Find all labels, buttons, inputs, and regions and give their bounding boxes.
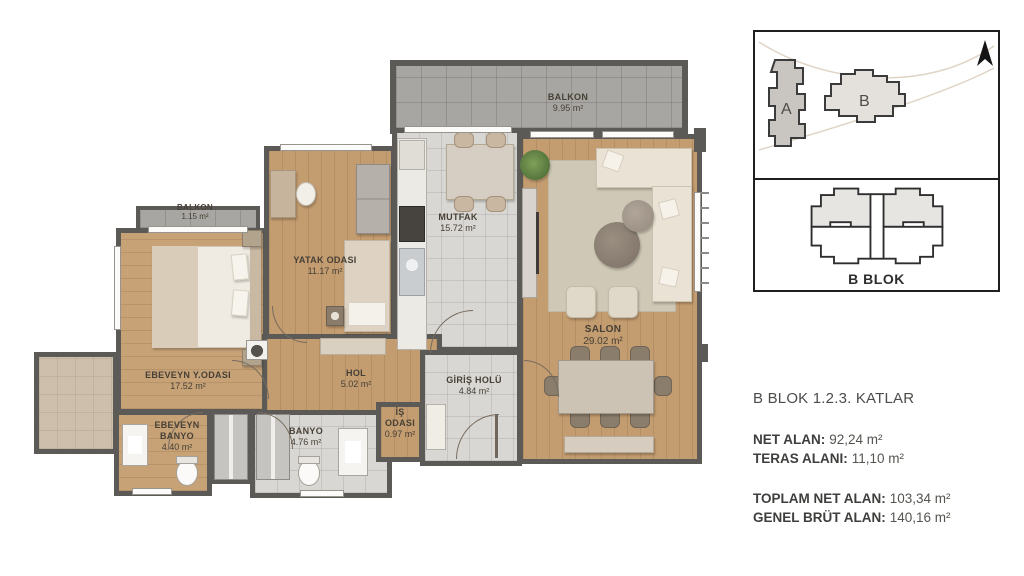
fridge [399, 140, 425, 170]
window [602, 131, 674, 138]
window [280, 144, 372, 151]
window [694, 192, 701, 292]
window [132, 488, 172, 495]
building-b-label: B [859, 93, 870, 110]
chair [454, 132, 474, 148]
block-plan-panel: B BLOK [755, 180, 998, 290]
cooktop [399, 206, 425, 242]
kitchen-table [446, 144, 514, 200]
shower [214, 414, 248, 480]
site-plan-panel: A B [755, 32, 998, 180]
window-hatch-marks [701, 192, 709, 292]
tv-unit [522, 188, 537, 298]
label-workroom: İŞ ODASI 0.97 m² [385, 407, 416, 440]
window [530, 131, 594, 138]
label-kitchen: MUTFAK 15.72 m² [438, 212, 477, 234]
label-bedroom: YATAK ODASI 11.17 m² [293, 255, 356, 277]
room-balcony-top [390, 60, 688, 134]
label-balcony-top: BALKON 9.95 m² [548, 92, 588, 114]
net-area-row: NET ALAN:92,24 m² [753, 430, 904, 449]
label-hall: HOL 5.02 m² [341, 368, 372, 390]
chair [454, 196, 474, 212]
area-info: B BLOK 1.2.3. KATLAR NET ALAN:92,24 m² T… [753, 390, 914, 407]
wall-stub [697, 344, 708, 362]
washing-machine [246, 340, 268, 360]
armchair [608, 286, 638, 318]
nightstand [326, 306, 344, 326]
label-bathroom: BANYO 4.76 m² [289, 426, 323, 448]
window [300, 490, 344, 497]
gross-area-row: GENEL BRÜT ALAN:140,16 m² [753, 508, 951, 527]
bed-blanket [152, 246, 198, 348]
bathroom-vanity [338, 428, 368, 476]
headboard [250, 246, 261, 348]
block-caption: B BLOK [755, 271, 998, 287]
window [148, 226, 248, 233]
desk [270, 170, 296, 218]
wardrobe [356, 164, 390, 234]
plant [520, 150, 550, 180]
label-master-bedroom: EBEVEYN Y.ODASI 17.52 m² [145, 370, 231, 392]
label-master-bathroom: EBEVEYN BANYO 4.40 m² [154, 420, 199, 453]
floor-title: B BLOK 1.2.3. KATLAR [753, 390, 914, 407]
chair [486, 196, 506, 212]
terrace-strip [34, 352, 118, 454]
toilet-tank [298, 456, 320, 464]
location-inset: A B B BLOK [753, 30, 1000, 292]
toilet-tank [176, 456, 198, 464]
bathroom-vanity [122, 424, 148, 466]
total-net-area-row: TOPLAM NET ALAN:103,34 m² [753, 489, 951, 508]
block-footprint [797, 182, 957, 268]
desk-chair [296, 182, 316, 206]
hall-console [320, 338, 386, 355]
dining-table [558, 360, 654, 414]
kitchen-sink [399, 248, 425, 296]
window [114, 246, 121, 330]
pillow [231, 253, 250, 281]
total-areas-group: TOPLAM NET ALAN:103,34 m² GENEL BRÜT ALA… [753, 489, 951, 527]
sofa-pillow [658, 266, 679, 287]
net-areas-group: NET ALAN:92,24 m² TERAS ALANI:11,10 m² [753, 430, 904, 468]
sideboard [564, 436, 654, 453]
floorplan-page: BALKON 9.95 m² BALKON 1.15 m² YATAK ODAS… [0, 0, 1024, 576]
tv [536, 212, 539, 274]
window [404, 126, 512, 133]
label-balcony-left: BALKON 1.15 m² [177, 203, 213, 221]
entry-closet [426, 404, 446, 450]
building-a-label: A [781, 101, 792, 118]
pillow [231, 289, 249, 316]
label-entrance-hall: GİRİŞ HOLÜ 4.84 m² [446, 375, 502, 397]
chair [486, 132, 506, 148]
coffee-table-small [622, 200, 654, 232]
armchair [566, 286, 596, 318]
entrance-door-leaf [495, 414, 498, 458]
dining-chair [654, 376, 672, 396]
label-livingroom: SALON 29.02 m² [583, 324, 622, 348]
terrace-area-row: TERAS ALANI:11,10 m² [753, 449, 904, 468]
north-arrow-icon [977, 40, 993, 66]
wall-stub [694, 128, 706, 152]
pillow [348, 302, 386, 326]
site-plan: A B [755, 32, 998, 176]
